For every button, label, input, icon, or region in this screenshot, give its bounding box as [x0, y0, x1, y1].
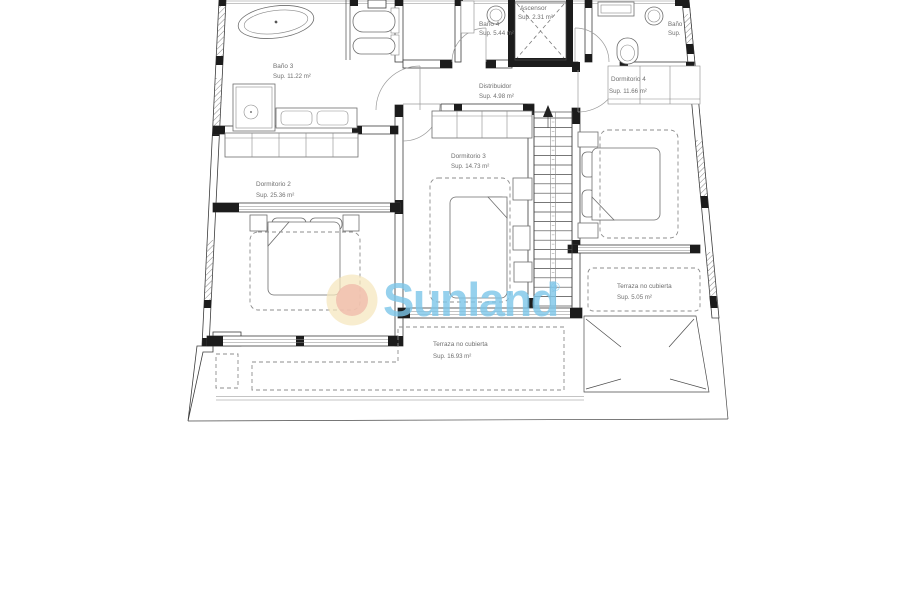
sun-inner-circle [336, 284, 368, 316]
room-area-bano-clipped: Sup. [668, 30, 681, 37]
room-area-terraza-5: Sup. 5.05 m² [617, 294, 652, 301]
room-area-terraza-16: Sup. 16.93 m² [433, 353, 471, 360]
floor-plan-svg: Baño 3 Sup. 11.22 m² Baño 4 Sup. 5.44 m²… [0, 0, 900, 600]
terrace-dashed-outline [216, 354, 238, 388]
room-label-dormitorio4: Dormitorio 4 [611, 76, 646, 83]
room-area-dormitorio3: Sup. 14.73 m² [451, 163, 489, 170]
room-label-terraza-16: Terraza no cubierta [433, 341, 488, 348]
bathtub [236, 1, 315, 42]
sun-icon [327, 275, 378, 326]
sunland-watermark: Sunland ® [327, 273, 561, 326]
room-label-ascensor: Ascensor [520, 5, 548, 12]
right-wall [682, 0, 719, 318]
nightstand [513, 226, 530, 250]
window-hatch [683, 14, 693, 44]
window-hatch [695, 140, 708, 200]
screenshot-canvas: Baño 3 Sup. 11.22 m² Baño 4 Sup. 5.44 m²… [0, 0, 900, 600]
room-area-distribuidor: Sup. 4.98 m² [479, 93, 514, 100]
room-label-bano-clipped: Baño [668, 21, 683, 28]
left-wall [202, 0, 226, 346]
room-area-ascensor: Sup. 2.31 m² [518, 14, 553, 21]
bed [578, 130, 678, 238]
closet [225, 133, 358, 157]
room-label-bano4: Baño 4 [479, 21, 500, 28]
open-area-marking [584, 316, 709, 392]
room-area-bano3: Sup. 11.22 m² [273, 73, 311, 80]
closet [608, 66, 700, 104]
ensuite-fixtures [598, 2, 663, 64]
registered-mark: ® [551, 280, 560, 294]
toilet-bidet [353, 8, 399, 55]
nightstand [578, 132, 598, 147]
room-label-dormitorio2: Dormitorio 2 [256, 181, 291, 188]
bano3-fixtures [233, 1, 399, 131]
nightstand [343, 215, 359, 231]
room-area-dormitorio2: Sup. 25.36 m² [256, 192, 294, 199]
nightstand [250, 215, 267, 231]
room-label-terraza-5: Terraza no cubierta [617, 283, 672, 290]
window-hatch [213, 78, 223, 128]
room-label-dormitorio3: Dormitorio 3 [451, 153, 486, 160]
window-hatch [204, 240, 214, 300]
step-numbers [552, 122, 555, 291]
vanity-sinks [276, 108, 357, 128]
door-arc [376, 66, 420, 110]
room-label-bano3: Baño 3 [273, 63, 294, 70]
window-hatch [216, 6, 225, 56]
room-area-bano4: Sup. 5.44 m² [479, 30, 514, 37]
brand-text: Sunland [383, 273, 558, 326]
nightstand [578, 223, 598, 238]
nightstand [513, 178, 532, 200]
closet [432, 111, 532, 138]
room-area-dormitorio4: Sup. 11.66 m² [609, 88, 647, 95]
room-label-distribuidor: Distribuidor [479, 83, 512, 90]
stair-direction-arrow-icon [543, 105, 553, 117]
shower [233, 84, 275, 131]
